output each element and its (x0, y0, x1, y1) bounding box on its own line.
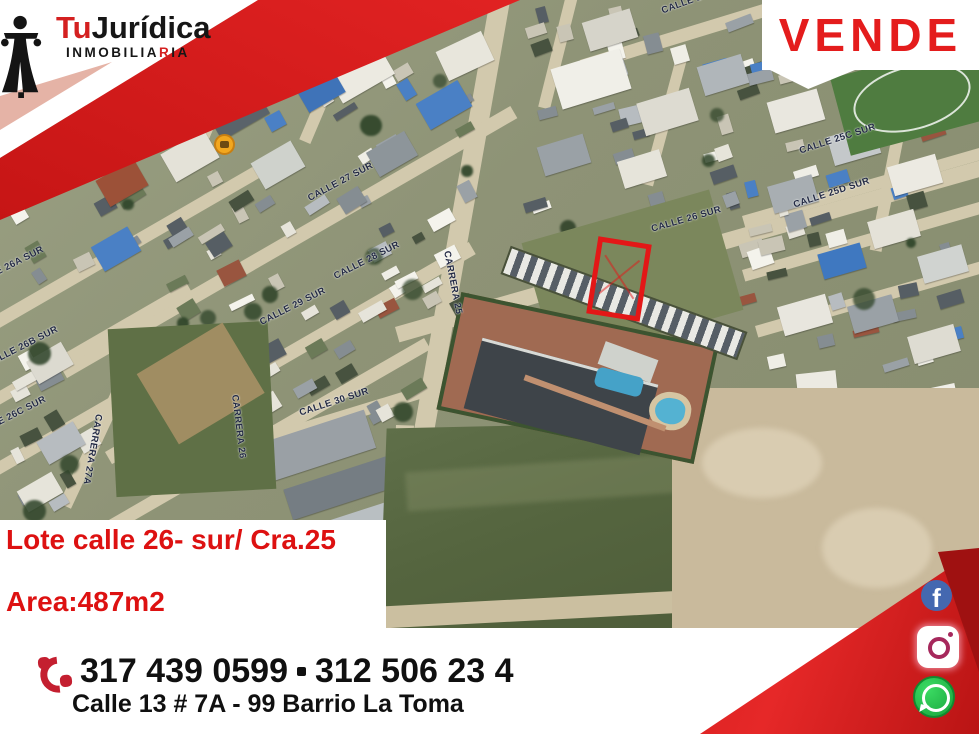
map-tree (710, 108, 724, 122)
map-tree (702, 154, 715, 167)
map-tree (23, 500, 46, 523)
brand-name-suffix: Jurídica (92, 10, 211, 45)
map-field-left (108, 321, 277, 497)
map-poi-marker (214, 134, 235, 155)
justice-statue-icon (0, 12, 52, 98)
vende-banner: VENDE (762, 0, 979, 70)
map-tree (393, 402, 413, 422)
map-tree (115, 119, 129, 133)
listing-title: Lote calle 26- sur/ Cra.25 (6, 524, 336, 556)
phone-number-2: 312 506 23 4 (315, 652, 514, 691)
agency-logo: TuJurídica INMOBILIARIA (0, 8, 260, 78)
map-dirt-spot (822, 508, 932, 588)
whatsapp-bubble-tail (919, 704, 929, 714)
brand-name-prefix: Tu (56, 10, 92, 45)
phone-icon-mouthpiece (59, 674, 72, 687)
poi-marker-glyph (220, 141, 229, 148)
phone-icon-earpiece (37, 656, 50, 669)
phone-number-1: 317 439 0599 (80, 652, 288, 691)
map-dirt-patch (137, 323, 265, 445)
listing-area: Area:487m2 (6, 586, 165, 618)
brand-subtitle-accent: R (159, 45, 171, 60)
instagram-flash-dot (948, 632, 953, 637)
map-tree (60, 455, 79, 474)
phone-separator-dot (297, 667, 306, 676)
map-tree (433, 74, 448, 89)
map-dirt-spot (702, 428, 822, 498)
map-tree (402, 279, 423, 300)
map-field-streak (405, 453, 679, 510)
phone-icon (36, 653, 73, 690)
real-estate-flyer: CALLE 25B SURCALLE 25C SURCALLE 25D SURC… (0, 0, 979, 734)
address-line: Calle 13 # 7A - 99 Barrio La Toma (72, 690, 464, 719)
phone-row: 317 439 0599 312 506 23 4 (38, 652, 514, 691)
brand-name: TuJurídica (56, 10, 210, 46)
facebook-icon: f (921, 580, 952, 611)
facebook-letter: f (932, 583, 941, 611)
vende-text: VENDE (779, 8, 962, 62)
brand-subtitle: INMOBILIARIA (66, 45, 190, 60)
instagram-lens (928, 637, 950, 659)
brand-subtitle-pre: INMOBILIA (66, 45, 159, 60)
brand-subtitle-post: IA (171, 45, 190, 60)
map-tree (360, 115, 382, 137)
instagram-icon (917, 626, 959, 668)
whatsapp-icon (913, 676, 955, 718)
